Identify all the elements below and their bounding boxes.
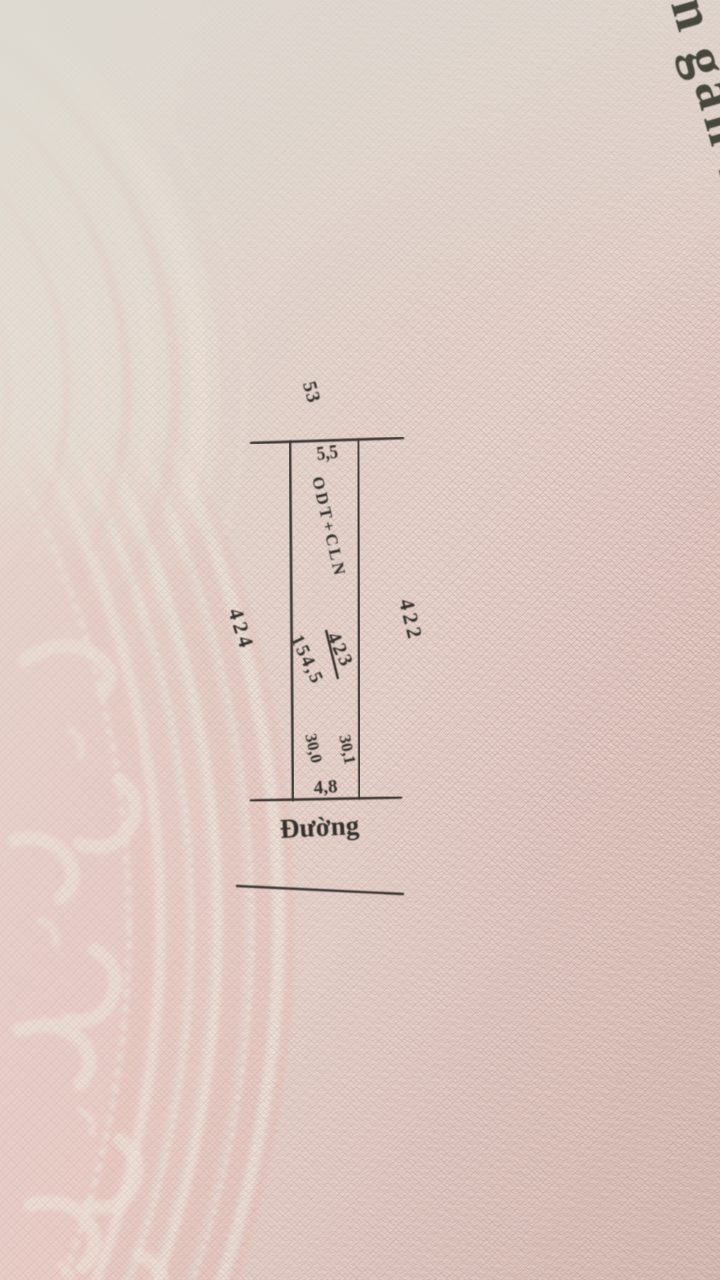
svg-text:5,5: 5,5 [315, 441, 339, 466]
svg-text:Đường: Đường [279, 810, 360, 844]
svg-text:4,8: 4,8 [313, 776, 338, 799]
